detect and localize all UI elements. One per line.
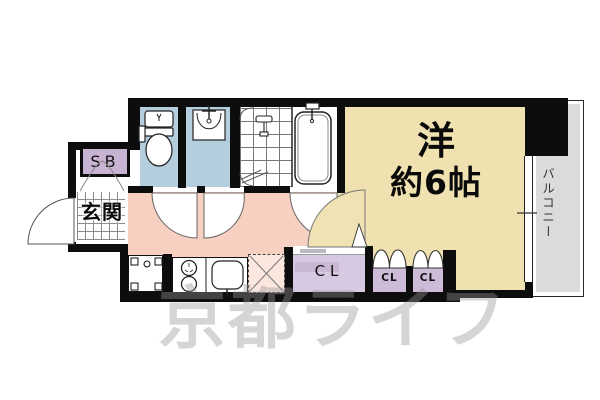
- shoe-box: SB: [80, 146, 130, 177]
- wall: [178, 106, 186, 188]
- entrance-label: 玄関: [78, 196, 126, 225]
- bathroom-tiles: [240, 107, 292, 187]
- main-room-label: 洋 約6帖: [347, 122, 525, 199]
- shoe-box-label: SB: [90, 152, 119, 171]
- main-room-label-line2: 約6帖: [347, 166, 525, 199]
- wall: [525, 98, 568, 156]
- wall: [230, 106, 240, 188]
- floor-plan: SB CL CL CL: [0, 0, 600, 400]
- wall: [68, 142, 76, 198]
- wall: [68, 244, 128, 252]
- watermark-text: 京都ライフ: [158, 263, 508, 362]
- wall: [244, 186, 290, 193]
- wall: [525, 282, 533, 298]
- entrance-door-arc: [28, 198, 74, 244]
- washbasin-room: [186, 107, 230, 187]
- wall: [197, 186, 205, 193]
- balcony-window: [524, 156, 533, 282]
- wall: [128, 98, 568, 107]
- balcony-label: バルコニー: [541, 167, 557, 282]
- doorway-strip: [337, 192, 345, 248]
- main-room-label-line1: 洋: [347, 122, 525, 160]
- toilet-room: [140, 107, 178, 187]
- wall: [337, 98, 345, 193]
- wall: [128, 186, 153, 193]
- closet-door-handle: [300, 249, 326, 253]
